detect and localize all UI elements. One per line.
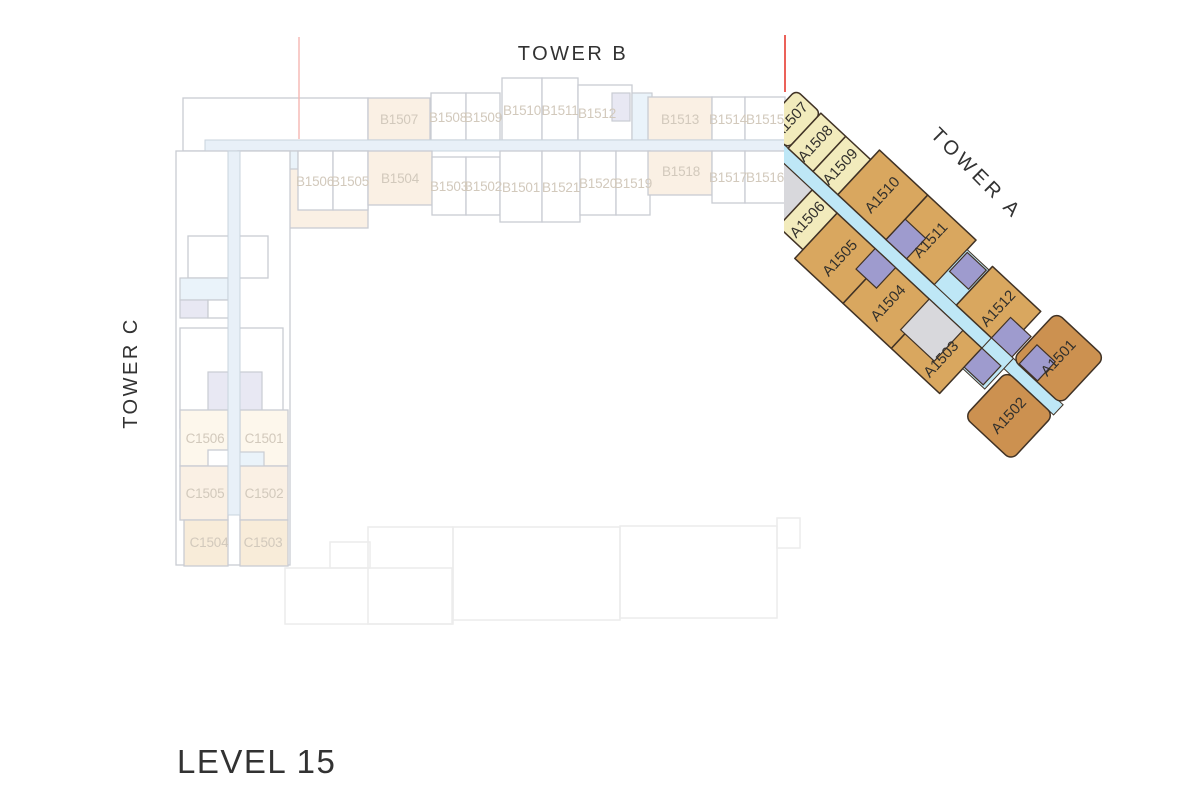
unit-label: B1516 <box>746 170 784 185</box>
podium-shape <box>330 542 370 568</box>
unit-label: C1501 <box>245 431 284 446</box>
unit-label: C1503 <box>244 535 283 550</box>
unit-label: C1506 <box>186 431 225 446</box>
unit-label: B1517 <box>709 170 747 185</box>
unit-label: B1503 <box>430 179 468 194</box>
unit-label: B1509 <box>464 110 502 125</box>
unit-label: B1513 <box>661 112 699 127</box>
podium-shape <box>620 526 777 618</box>
floorplan-keyplan: B1507 B1508 B1509 B1510 B1511 B1512 B151… <box>0 0 1200 800</box>
unit-label: B1512 <box>578 106 616 121</box>
podium-outline <box>285 518 800 624</box>
unit-label: C1504 <box>190 535 229 550</box>
level-label: LEVEL 15 <box>177 743 336 780</box>
tower-c-label: TOWER C <box>120 317 142 429</box>
corridor-tower-b <box>205 140 785 151</box>
unit-label: B1506 <box>296 174 334 189</box>
unit-label: C1502 <box>245 486 284 501</box>
unit-label: B1502 <box>464 179 502 194</box>
unit-label: B1514 <box>709 112 748 127</box>
floorplan-canvas: B1507 B1508 B1509 B1510 B1511 B1512 B151… <box>0 0 1200 800</box>
unit-label: B1521 <box>542 180 580 195</box>
unit-label: B1505 <box>331 174 369 189</box>
unit-label: B1507 <box>380 112 418 127</box>
podium-shape <box>368 527 453 624</box>
unit-label: C1505 <box>186 486 225 501</box>
corridor-tower-c <box>228 151 240 515</box>
corridor-tower-a <box>749 121 1063 415</box>
unit-label: B1504 <box>381 171 420 186</box>
unit-label: B1519 <box>614 176 652 191</box>
unit-label: B1520 <box>579 176 617 191</box>
podium-shape <box>453 527 620 620</box>
unit-label: B1501 <box>502 180 540 195</box>
podium-shape <box>777 518 800 548</box>
unit-label: B1511 <box>541 103 578 118</box>
unit-label: B1515 <box>746 112 784 127</box>
ghost-core-cell <box>180 278 228 300</box>
unit-label: B1508 <box>429 110 467 125</box>
unit-label: B1518 <box>662 164 700 179</box>
unit-label: B1510 <box>503 103 541 118</box>
tower-c-ghost-block: C1506 C1501 C1505 C1502 C1504 C1503 <box>176 151 290 566</box>
tower-b-label: TOWER B <box>518 43 628 65</box>
ghost-core-cell <box>180 300 208 318</box>
